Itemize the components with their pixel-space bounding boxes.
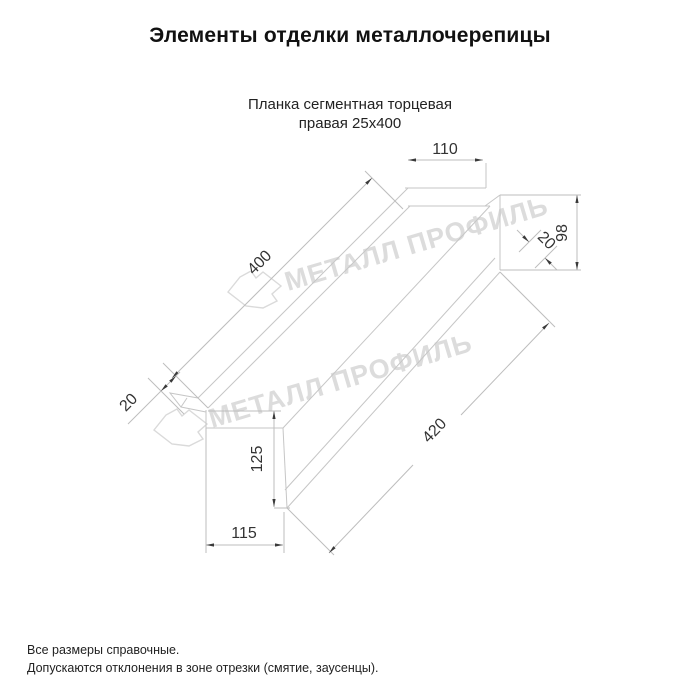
dim-20-left-label: 20 xyxy=(117,390,142,415)
footer-note-1: Все размеры справочные. xyxy=(27,642,379,660)
dim-top-width: 110 xyxy=(408,141,483,162)
dim-115-label: 115 xyxy=(231,525,257,542)
dim-bottom-length: 420 xyxy=(287,272,555,555)
footer-notes: Все размеры справочные. Допускаются откл… xyxy=(27,642,379,677)
dim-bottom-width: 115 xyxy=(206,428,284,553)
dim-420-label: 420 xyxy=(419,415,450,446)
watermark-logo-bottom xyxy=(154,409,207,446)
dim-110-label: 110 xyxy=(432,141,458,158)
technical-drawing: МЕТАЛЛ ПРОФИЛЬ МЕТАЛЛ ПРОФИЛЬ xyxy=(0,0,700,700)
product-drawing-page: Элементы отделки металлочерепицы Планка … xyxy=(0,0,700,700)
footer-note-2: Допускаются отклонения в зоне отрезки (с… xyxy=(27,660,379,678)
dim-125-label: 125 xyxy=(249,446,266,473)
dim-right-fold: 20 xyxy=(517,229,559,270)
dim-400-label: 400 xyxy=(244,247,275,278)
